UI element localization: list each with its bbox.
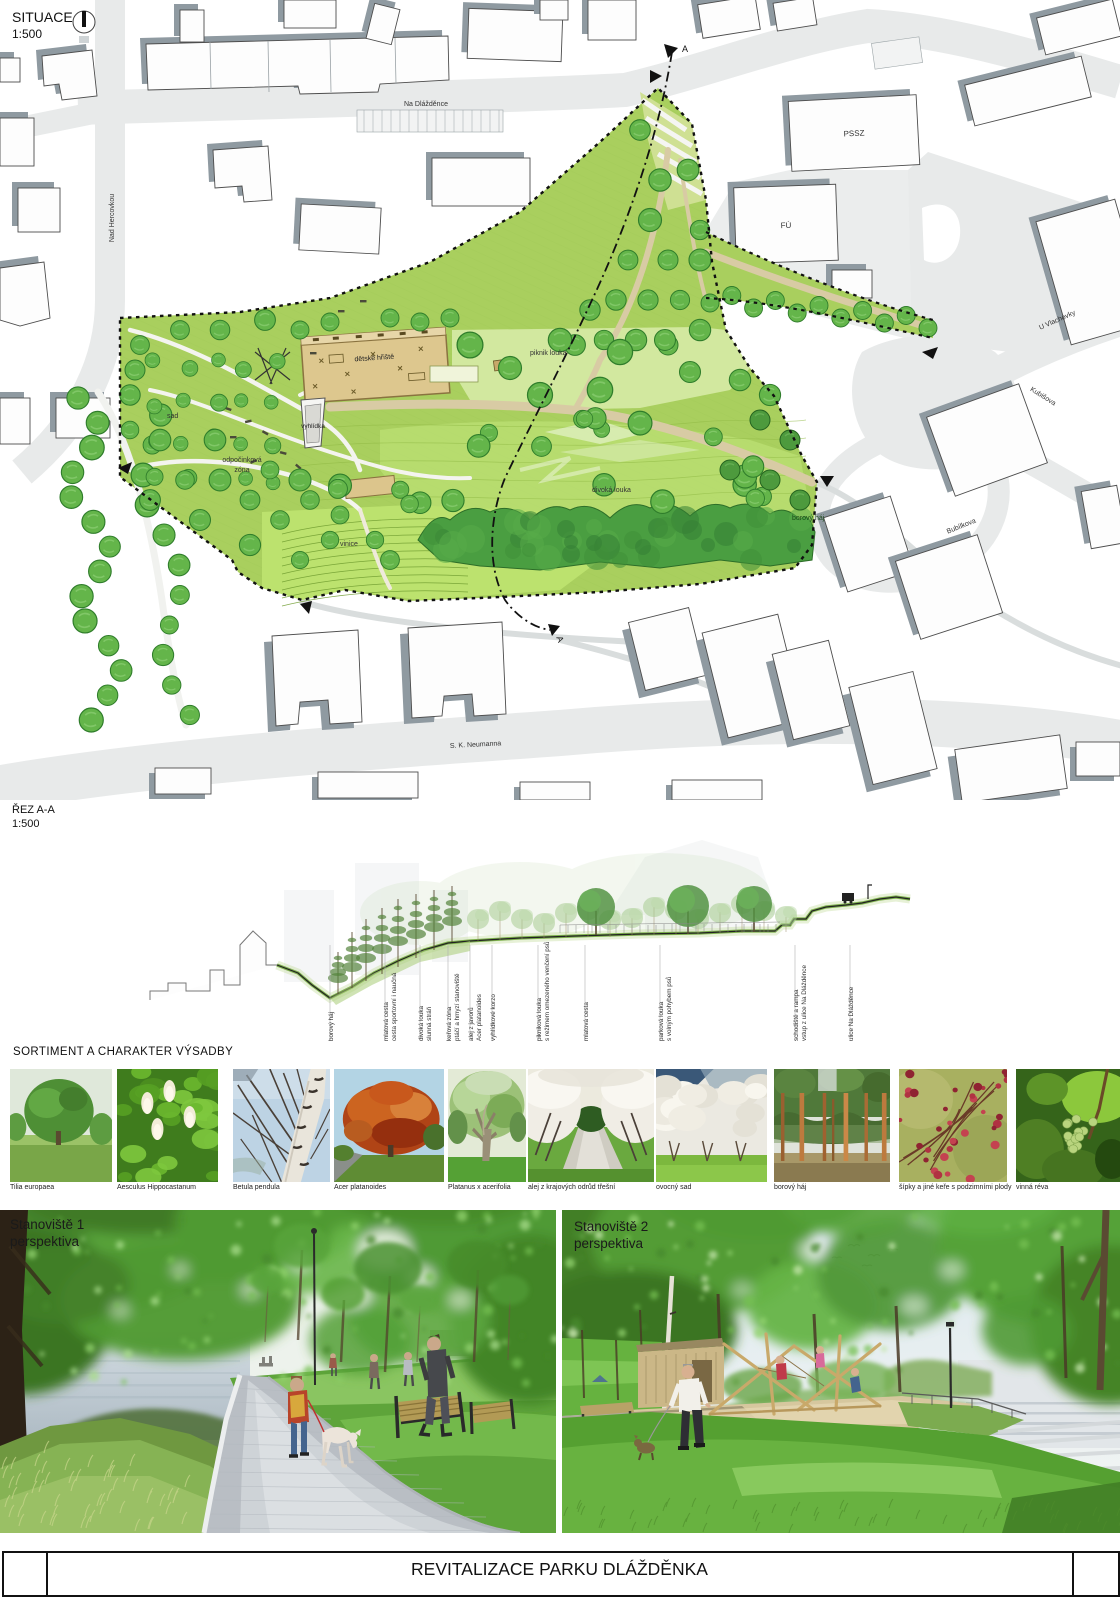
svg-text:borový háj: borový háj	[328, 1012, 335, 1041]
svg-text:mlatová cesta: mlatová cesta	[583, 1002, 590, 1041]
svg-text:ŘEZ A-A: ŘEZ A-A	[12, 803, 55, 816]
svg-text:schodiště a rampa: schodiště a rampa	[793, 989, 800, 1041]
svg-text:perspektiva: perspektiva	[574, 1236, 644, 1251]
svg-text:vyhlídka: vyhlídka	[301, 423, 325, 430]
svg-text:PSSZ: PSSZ	[843, 128, 864, 138]
svg-text:piknik louka: piknik louka	[530, 350, 567, 357]
svg-text:1:500: 1:500	[12, 818, 40, 830]
svg-text:parková louka: parková louka	[658, 1001, 665, 1041]
svg-text:1:500: 1:500	[12, 27, 42, 41]
svg-text:cesta sportovní i naučná: cesta sportovní i naučná	[391, 972, 398, 1041]
svg-text:ptáčí a hmyzí stanoviště: ptáčí a hmyzí stanoviště	[454, 973, 461, 1041]
svg-text:SITUACE: SITUACE	[12, 9, 73, 25]
svg-text:ulice Na Dlážděnce: ulice Na Dlážděnce	[848, 986, 855, 1041]
svg-text:divoká louka: divoká louka	[418, 1005, 425, 1041]
svg-text:Acer platanoides: Acer platanoides	[476, 994, 483, 1041]
svg-text:Stanoviště 1: Stanoviště 1	[10, 1217, 84, 1232]
svg-text:borový háj: borový háj	[792, 515, 825, 522]
svg-text:Stanoviště 2: Stanoviště 2	[574, 1219, 648, 1234]
svg-text:Na Dlážděnce: Na Dlážděnce	[404, 101, 448, 108]
svg-text:slunná stráň: slunná stráň	[426, 1006, 433, 1041]
svg-text:vinice: vinice	[340, 541, 358, 548]
svg-text:perspektiva: perspektiva	[10, 1234, 80, 1249]
svg-text:odpočinková: odpočinková	[222, 457, 261, 464]
svg-text:A: A	[682, 44, 688, 54]
svg-text:divoká louka: divoká louka	[592, 487, 631, 494]
svg-text:vyhlídkové korzo: vyhlídkové korzo	[490, 994, 497, 1041]
svg-text:s volným pohybem psů: s volným pohybem psů	[665, 976, 673, 1041]
svg-text:FÚ: FÚ	[781, 221, 792, 230]
svg-text:s režimem omezeného venčení ps: s režimem omezeného venčení psů	[543, 941, 551, 1041]
svg-text:mlatová cesta: mlatová cesta	[383, 1002, 390, 1041]
svg-text:sad: sad	[167, 413, 178, 420]
svg-text:pikniková louka: pikniková louka	[536, 997, 543, 1041]
svg-text:keřová zóna: keřová zóna	[446, 1006, 453, 1041]
svg-text:Nad Hercovkou: Nad Hercovkou	[109, 194, 116, 242]
svg-text:zóna: zóna	[234, 467, 249, 474]
svg-text:vstup z ulice Na Dlážděnce: vstup z ulice Na Dlážděnce	[801, 965, 808, 1041]
svg-text:alej z javorů: alej z javorů	[467, 1007, 475, 1041]
